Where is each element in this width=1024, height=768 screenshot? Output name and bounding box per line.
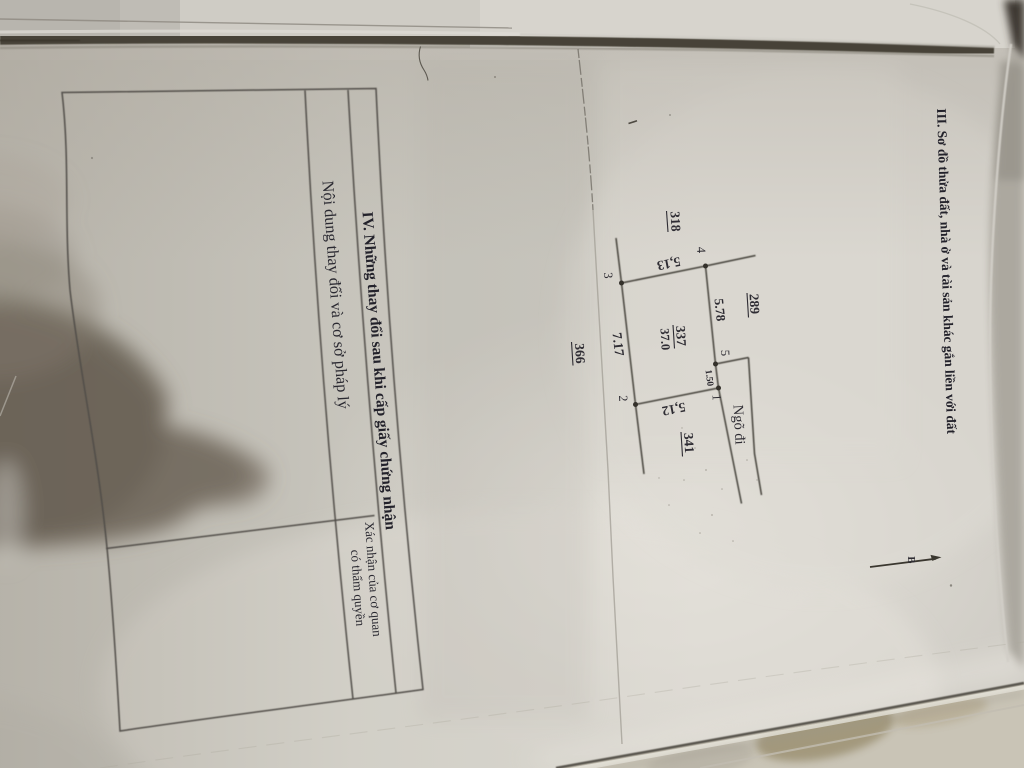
svg-text:3: 3	[601, 272, 615, 279]
svg-text:B: B	[905, 556, 916, 563]
svg-text:37.0: 37.0	[658, 328, 673, 351]
svg-text:318: 318	[668, 211, 684, 232]
svg-text:Ngõ đi: Ngõ đi	[730, 404, 748, 445]
svg-text:366: 366	[572, 343, 588, 364]
svg-text:337: 337	[673, 325, 689, 346]
svg-text:341: 341	[681, 432, 697, 453]
svg-text:5.78: 5.78	[712, 298, 729, 323]
svg-text:5: 5	[718, 349, 732, 356]
svg-text:7.17: 7.17	[610, 332, 628, 357]
svg-text:2: 2	[616, 395, 630, 402]
svg-text:289: 289	[747, 293, 763, 314]
svg-text:1.50: 1.50	[703, 369, 715, 387]
svg-text:1: 1	[710, 394, 724, 401]
